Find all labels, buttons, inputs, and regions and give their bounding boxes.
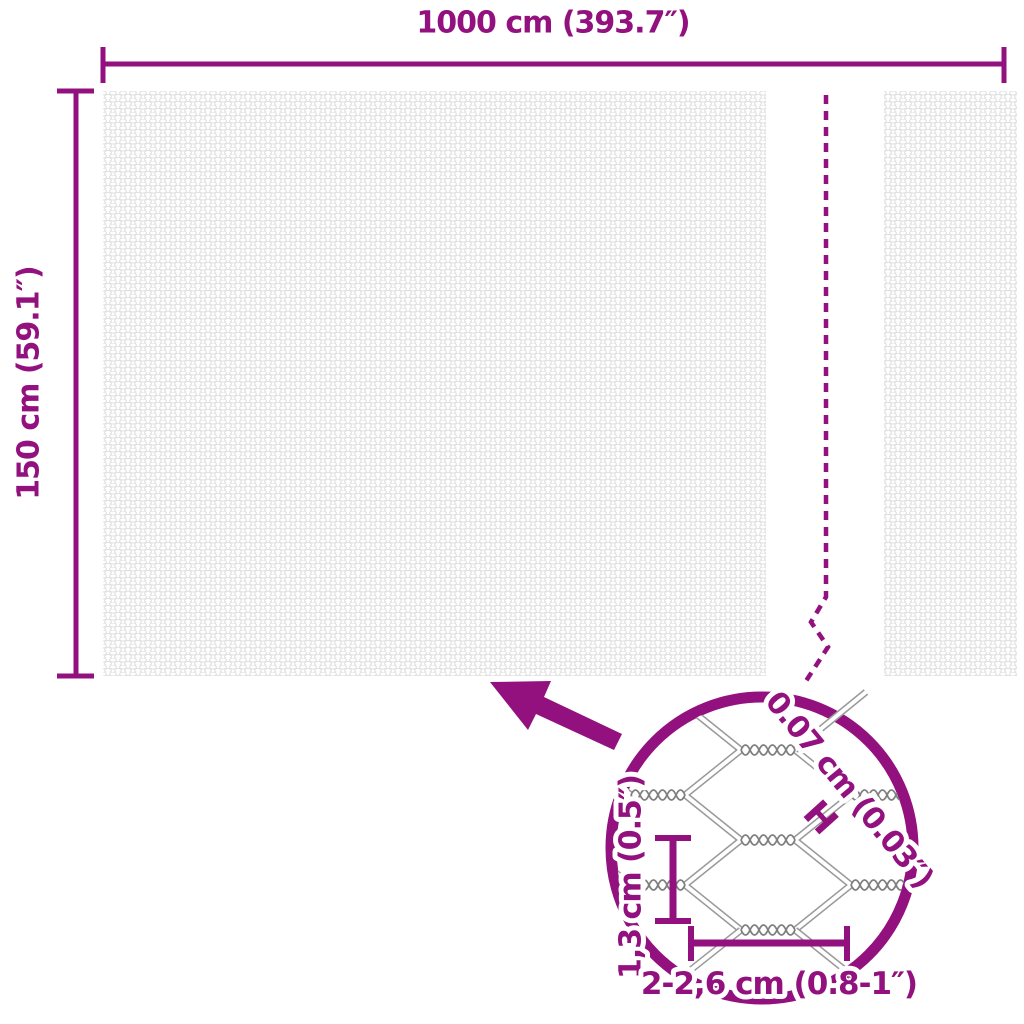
width-dimension-label: 1000 cm (393.7″): [416, 6, 689, 41]
detail-magnifier: H 0.07 cm (0.03″) 1,3 cm (0.5″) 2-2,6 cm…: [575, 685, 961, 1002]
width-dimension: 1000 cm (393.7″): [103, 6, 1004, 84]
product-dimension-diagram: 1000 cm (393.7″) 150 cm (59.1″): [0, 0, 1024, 1024]
height-dimension-label: 150 cm (59.1″): [12, 266, 47, 499]
mesh-panel-left: [103, 91, 766, 676]
height-dimension: 150 cm (59.1″): [12, 91, 95, 676]
mesh-width-label: 2-2,6 cm (0.8-1″): [641, 966, 917, 1002]
magnifier-circle: [611, 697, 913, 999]
zoom-arrow-icon: [490, 681, 622, 750]
mesh-panel-right: [884, 91, 1017, 676]
break-line: [806, 95, 828, 681]
diagram-canvas: 1000 cm (393.7″) 150 cm (59.1″): [0, 0, 1024, 1024]
mesh-height-label: 1,3 cm (0.5″): [614, 775, 649, 979]
